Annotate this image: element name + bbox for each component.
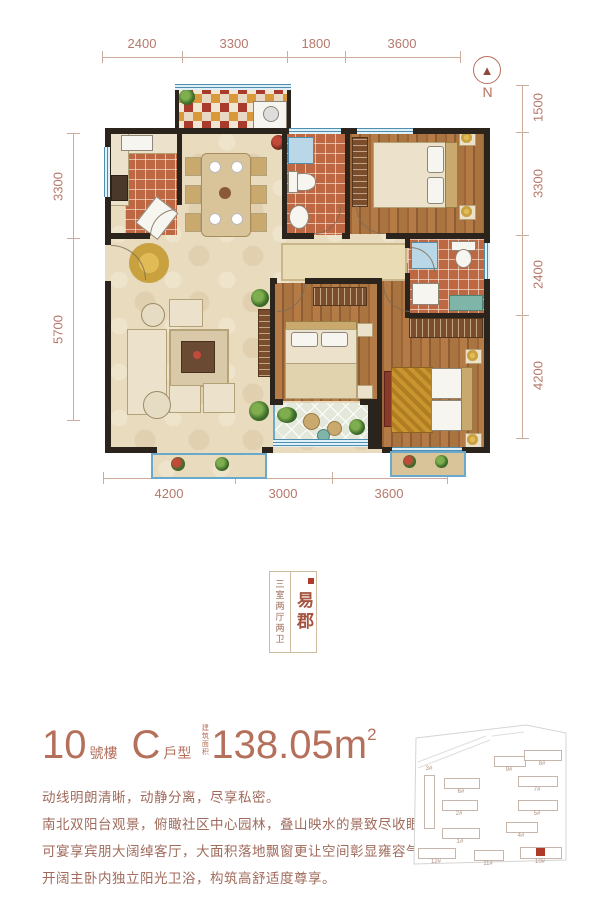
unit-suffix: 戶型 <box>163 745 191 761</box>
dim-label: 5700 <box>51 300 66 360</box>
building-label: 8# <box>525 761 559 767</box>
building-label: 10# <box>523 859 557 865</box>
window <box>104 147 110 197</box>
headboard <box>445 142 458 208</box>
bath-vanity <box>412 283 439 305</box>
centerpiece <box>219 187 231 199</box>
lamp <box>467 434 478 445</box>
building-label: 11# <box>471 861 505 867</box>
armchair <box>203 383 235 413</box>
wall-segment <box>462 447 490 453</box>
site-building <box>506 822 538 833</box>
dim-label: 1500 <box>531 78 546 138</box>
area-label: 建筑面积 <box>201 724 208 750</box>
dim-line <box>73 133 74 420</box>
plate <box>231 161 243 173</box>
table-flowers <box>193 351 201 359</box>
unit-letter: C <box>132 723 161 767</box>
wall-segment <box>175 85 179 131</box>
floorplan-page: 2400 3300 1800 3600 3300 5700 1500 3300 … <box>0 0 600 900</box>
walkin-closet <box>409 318 483 338</box>
site-building <box>442 828 480 839</box>
living-balcony <box>151 453 267 479</box>
pillow <box>321 332 348 347</box>
dining-chair <box>251 185 267 204</box>
wall-segment <box>177 133 182 205</box>
window <box>175 84 291 90</box>
site-building <box>442 800 478 811</box>
washing-machine-drum <box>263 106 279 122</box>
bath-mat <box>449 295 483 311</box>
wall-segment <box>282 233 314 239</box>
wall-segment <box>270 278 275 405</box>
description-line: 开阔主卧内独立阳光卫浴，构筑高舒适度尊享。 <box>42 865 448 892</box>
pillow <box>427 177 444 204</box>
wall-segment <box>386 233 490 239</box>
wall-segment <box>368 399 382 449</box>
pillow <box>431 400 463 431</box>
master-flower-box <box>390 451 466 477</box>
seal-name-column: 易郡 <box>291 572 316 652</box>
dim-label: 3300 <box>204 36 264 51</box>
dim-label: 4200 <box>531 346 546 406</box>
plant <box>251 289 269 307</box>
dim-label: 3000 <box>253 486 313 501</box>
red-stamp-icon <box>308 578 314 584</box>
flower-pot <box>435 455 448 468</box>
plant <box>249 401 269 421</box>
building-label: 4# <box>504 833 538 839</box>
site-building <box>494 756 526 767</box>
highlighted-unit <box>536 848 545 856</box>
building-label: 1# <box>443 839 477 845</box>
wall-segment <box>484 128 490 453</box>
dim-label: 4200 <box>139 486 199 501</box>
dim-tick <box>102 51 103 63</box>
wall-segment <box>282 133 287 239</box>
wardrobe <box>313 287 367 306</box>
dining-chair <box>251 213 267 232</box>
blanket <box>285 363 357 399</box>
pillow <box>427 146 444 173</box>
project-seal: 三室两厅两卫 易郡 <box>269 571 317 653</box>
area-value: 138.05m <box>211 723 367 767</box>
dim-label: 3300 <box>531 154 546 214</box>
plate <box>209 161 221 173</box>
flower-pot <box>171 457 185 471</box>
dim-tick <box>67 133 80 134</box>
dim-tick <box>67 420 80 421</box>
area-exponent: 2 <box>367 725 376 744</box>
sink-pedestal <box>289 205 309 229</box>
lamp <box>461 206 472 217</box>
wall-segment <box>405 313 490 318</box>
site-plan: 3# 6# 2# 1# 12# 11# 10# 9# 8# 7# 5# 4# <box>406 720 578 872</box>
building-label: 12# <box>419 859 453 865</box>
seal-layout-column: 三室两厅两卫 <box>270 572 291 652</box>
kitchen-sink <box>121 135 153 151</box>
site-building <box>518 800 558 811</box>
dining-chair <box>185 157 201 176</box>
toilet-tank <box>288 171 298 193</box>
building-number: 10 <box>42 723 87 767</box>
building-suffix: 號樓 <box>90 745 118 761</box>
dim-label: 3600 <box>372 36 432 51</box>
layout-spec-label: 三室两厅两卫 <box>274 579 287 645</box>
window <box>357 128 413 134</box>
kitchen-stove <box>111 175 128 201</box>
dim-label: 1800 <box>286 36 346 51</box>
plant <box>349 419 365 435</box>
site-building <box>518 776 558 787</box>
flower-pot <box>403 455 416 468</box>
wall-segment <box>377 284 382 405</box>
wall-segment <box>105 281 111 453</box>
plant <box>179 89 195 105</box>
dim-tick <box>103 472 104 484</box>
dim-label: 3600 <box>359 486 419 501</box>
building-label: 7# <box>520 787 554 793</box>
description-block: 动线明朗清晰，动静分离，尽享私密。 南北双阳台观景，俯瞰社区中心园林，叠山映水的… <box>42 784 448 892</box>
wall-segment <box>105 233 150 239</box>
dim-tick <box>287 51 288 63</box>
nightstand <box>357 323 373 337</box>
window-balcony-rail <box>273 439 368 447</box>
plate <box>209 213 221 225</box>
description-line: 可宴享宾朋大阔绰客厅，大面积落地飘窗更让空间彰显雍容气度。 <box>42 838 448 865</box>
lamp <box>467 350 478 361</box>
building-label: 5# <box>520 811 554 817</box>
wall-segment <box>105 447 157 453</box>
unit-title: 10號樓C戶型建筑面积138.05m2 <box>42 720 377 770</box>
shower <box>288 137 314 164</box>
dim-label: 2400 <box>531 245 546 305</box>
hall-runner-rug <box>281 243 407 281</box>
dim-label: 2400 <box>112 36 172 51</box>
nightstand <box>357 385 373 399</box>
side-table <box>143 391 171 419</box>
side-table <box>141 303 165 327</box>
compass-icon: ▲ <box>473 56 501 84</box>
site-building <box>418 848 456 859</box>
dim-label: 3300 <box>51 157 66 217</box>
site-building <box>474 850 504 861</box>
dim-tick <box>182 51 183 63</box>
building-label: 3# <box>412 766 446 772</box>
dining-chair <box>251 157 267 176</box>
armchair <box>169 385 201 413</box>
pillow <box>431 368 463 399</box>
wardrobe <box>352 137 368 207</box>
dim-tick <box>67 238 80 239</box>
project-name: 易郡 <box>291 591 316 633</box>
dim-tick <box>460 51 461 63</box>
dim-tick <box>516 85 529 86</box>
window <box>484 243 490 279</box>
dim-tick <box>516 438 529 439</box>
toilet <box>455 249 472 268</box>
window <box>289 128 341 134</box>
building-label: 9# <box>492 767 526 773</box>
dim-tick <box>516 235 529 236</box>
dim-line <box>522 85 523 438</box>
floor-plan <box>105 85 490 480</box>
dim-line <box>102 57 460 58</box>
master-blanket <box>391 367 433 433</box>
dining-chair <box>185 185 201 204</box>
building-label: 2# <box>442 811 476 817</box>
flower-pot <box>215 457 229 471</box>
pillow <box>291 332 318 347</box>
site-building <box>444 778 480 789</box>
dining-chair <box>185 213 201 232</box>
wall-segment <box>270 399 283 405</box>
description-line: 南北双阳台观景，俯瞰社区中心园林，叠山映水的景致尽收眼底。 <box>42 811 448 838</box>
headboard <box>461 367 473 431</box>
building-label: 6# <box>444 789 478 795</box>
wall-segment <box>345 133 350 239</box>
dim-tick <box>516 315 529 316</box>
wall-segment <box>305 278 382 284</box>
plant <box>277 407 297 423</box>
wicker-chair <box>303 413 320 430</box>
site-building <box>424 775 435 829</box>
dim-tick <box>516 132 529 133</box>
dim-tick <box>345 51 346 63</box>
plate <box>231 213 243 225</box>
site-building <box>524 750 562 761</box>
sofa-chaise <box>169 299 203 327</box>
wall-segment <box>287 85 291 131</box>
description-line: 动线明朗清晰，动静分离，尽享私密。 <box>42 784 448 811</box>
